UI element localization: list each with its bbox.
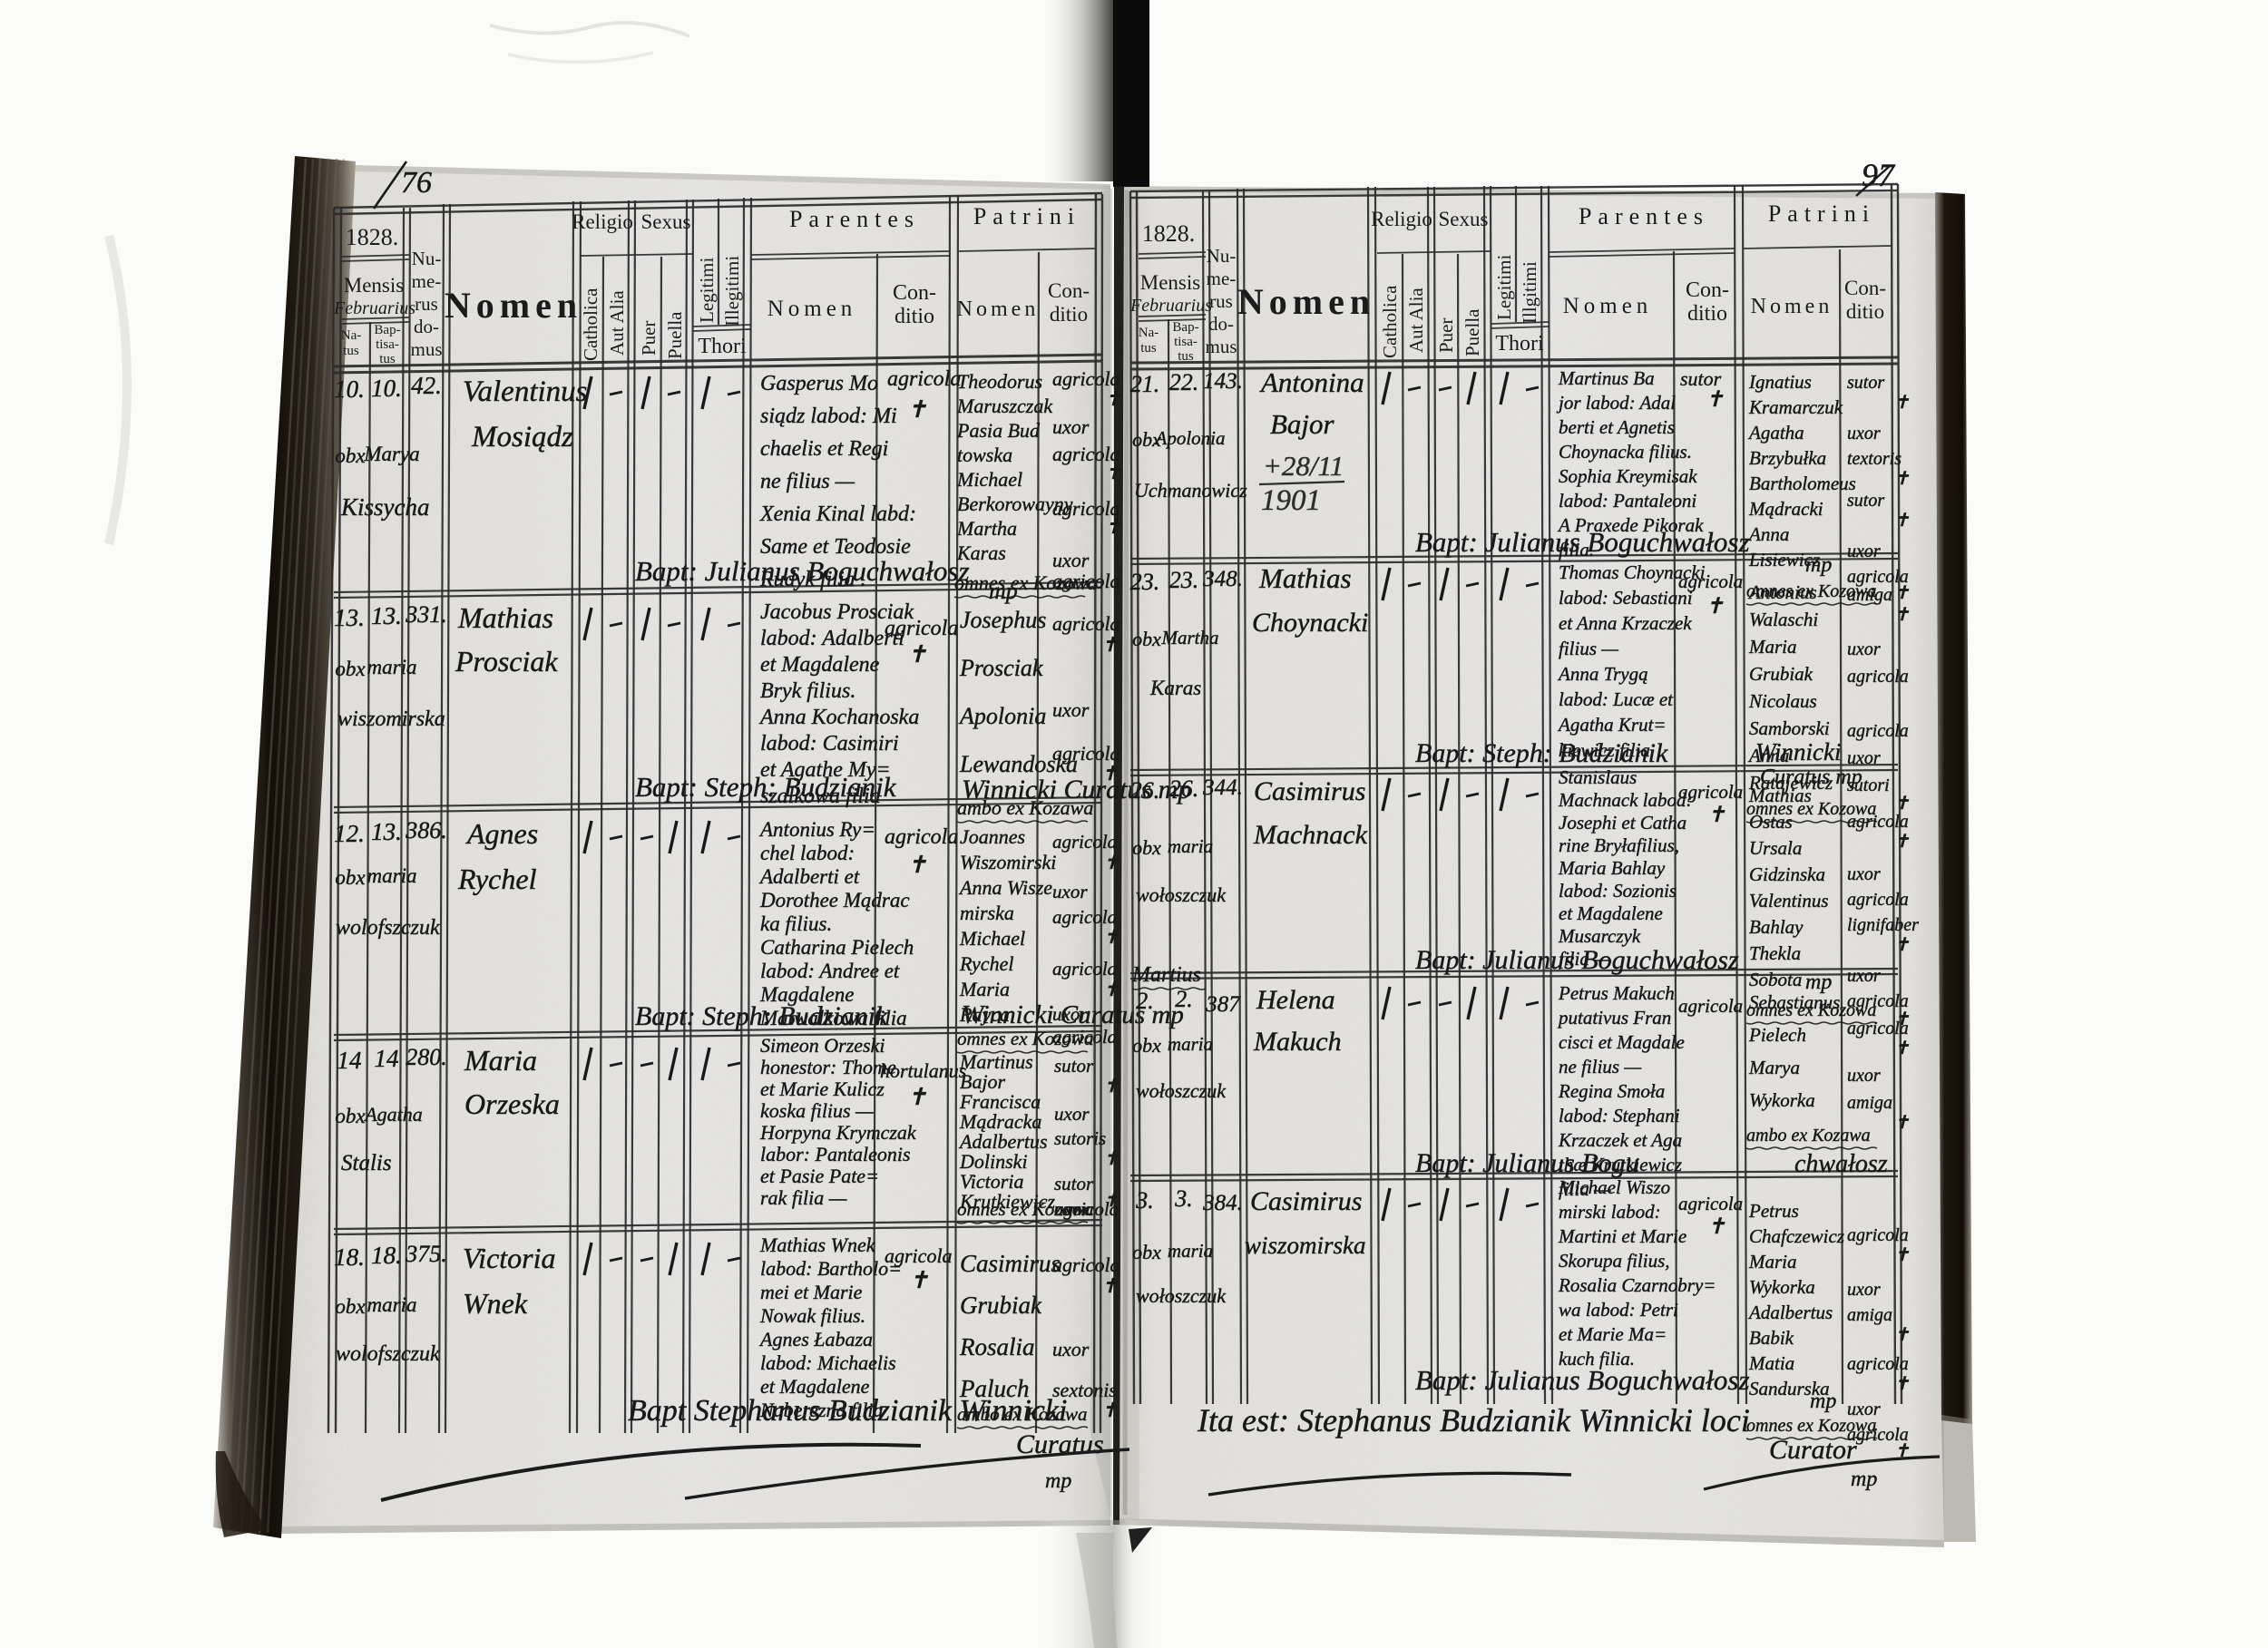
- svg-text:uxor: uxor: [1052, 549, 1090, 571]
- svg-text:sutor: sutor: [1054, 1173, 1094, 1195]
- svg-text:Apolonia: Apolonia: [958, 703, 1046, 729]
- svg-text:✝: ✝: [1894, 1325, 1910, 1345]
- svg-text:Na-: Na-: [341, 328, 362, 343]
- svg-text:Bapt: Julianus Boguchwałosz: Bapt: Julianus Boguchwałosz: [1415, 1364, 1750, 1396]
- svg-text:Martius: Martius: [1131, 963, 1201, 987]
- svg-text:mp: mp: [1805, 553, 1832, 577]
- svg-text:Bapt: Julianus Boguchwałosz: Bapt: Julianus Boguchwałosz: [1415, 526, 1750, 558]
- svg-text:agricola: agricola: [885, 1244, 953, 1267]
- svg-text:Con-: Con-: [1048, 279, 1090, 302]
- svg-text:Agnes Łabaza: Agnes Łabaza: [758, 1328, 873, 1351]
- svg-text:sutor: sutor: [1680, 367, 1722, 390]
- svg-text:Mathias: Mathias: [1748, 785, 1812, 806]
- svg-text:Bap-: Bap-: [374, 323, 400, 337]
- svg-text:Maria: Maria: [1748, 1251, 1797, 1273]
- svg-text:Sebastianus: Sebastianus: [1749, 991, 1840, 1013]
- svg-text:✝: ✝: [907, 396, 927, 423]
- svg-text:agricola: agricola: [1847, 667, 1909, 687]
- svg-text:labod: Sozionis: labod: Sozionis: [1559, 880, 1677, 902]
- svg-text:Petrus: Petrus: [1748, 1200, 1799, 1222]
- svg-text:Marya: Marya: [363, 443, 419, 465]
- svg-text:do-: do-: [414, 316, 439, 337]
- svg-text:Valentinus: Valentinus: [1749, 890, 1829, 912]
- svg-text:et Marie Ma=: et Marie Ma=: [1559, 1323, 1667, 1345]
- svg-text:3.: 3.: [1174, 1185, 1193, 1212]
- svg-text:mus: mus: [410, 338, 442, 360]
- svg-text:towska: towska: [957, 444, 1012, 466]
- svg-text:Casimirus: Casimirus: [1254, 776, 1365, 806]
- svg-text:Illgitimi: Illgitimi: [1519, 261, 1540, 324]
- svg-text:mirski labod:: mirski labod:: [1559, 1201, 1661, 1223]
- svg-text:Ignatius: Ignatius: [1748, 371, 1812, 393]
- svg-text:labod: Andree et: labod: Andree et: [760, 960, 900, 982]
- svg-text:rine Bryłafilius,: rine Bryłafilius,: [1559, 834, 1679, 856]
- svg-text:Legitimi: Legitimi: [1493, 255, 1515, 320]
- svg-text:Maria: Maria: [464, 1044, 537, 1077]
- svg-text:Matia: Matia: [1748, 1352, 1794, 1374]
- svg-text:labor: Pantaleonis: labor: Pantaleonis: [760, 1143, 911, 1165]
- svg-text:Michael Wiszo: Michael Wiszo: [1558, 1176, 1670, 1198]
- svg-text:Nomen: Nomen: [767, 297, 857, 321]
- svg-text:obx: obx: [1132, 628, 1161, 650]
- svg-text:ne filius —: ne filius —: [760, 470, 855, 493]
- svg-text:obx: obx: [335, 658, 366, 680]
- svg-text:agricola: agricola: [1678, 1193, 1743, 1214]
- svg-text:3.: 3.: [1135, 1187, 1154, 1214]
- svg-text:387: 387: [1205, 992, 1241, 1017]
- svg-text:berti et Agnetis: berti et Agnetis: [1559, 416, 1675, 438]
- svg-text:✝: ✝: [1101, 1399, 1118, 1421]
- svg-text:Skorupa filius,: Skorupa filius,: [1559, 1250, 1670, 1272]
- svg-text:344.: 344.: [1202, 775, 1243, 800]
- svg-text:wolofszczuk: wolofszczuk: [336, 916, 440, 940]
- svg-text:Bajor: Bajor: [1270, 408, 1335, 440]
- svg-text:Marya: Marya: [1748, 1057, 1800, 1078]
- svg-text:Pasia Bud: Pasia Bud: [956, 419, 1041, 442]
- svg-text:amiga: amiga: [1847, 585, 1892, 605]
- svg-text:Antonius: Antonius: [1747, 581, 1817, 603]
- svg-text:me-: me-: [1207, 268, 1237, 289]
- svg-text:Nicolaus: Nicolaus: [1748, 690, 1817, 712]
- svg-text:Ita est: Stephanus Budziani: Ita est: Stephanus Budzianik Winnicki lo…: [1197, 1402, 1750, 1438]
- svg-text:et Magdalene: et Magdalene: [760, 653, 880, 677]
- svg-text:✝: ✝: [1894, 794, 1910, 814]
- svg-text:Nomen: Nomen: [1237, 281, 1375, 322]
- svg-text:✝: ✝: [907, 641, 927, 668]
- svg-text:obx: obx: [335, 1295, 366, 1318]
- svg-text:obx: obx: [1132, 836, 1161, 859]
- svg-text:✝: ✝: [1103, 1147, 1119, 1169]
- svg-text:uxor: uxor: [1847, 966, 1881, 986]
- svg-text:agricola: agricola: [1678, 995, 1743, 1017]
- svg-text:Con-: Con-: [1844, 277, 1886, 299]
- svg-text:Babik: Babik: [1749, 1327, 1794, 1349]
- svg-text:maria: maria: [1168, 835, 1213, 857]
- svg-text:Februarius: Februarius: [333, 298, 415, 318]
- svg-text:maria: maria: [1168, 1033, 1213, 1055]
- svg-text:13.: 13.: [371, 818, 402, 845]
- svg-text:sutoris: sutoris: [1054, 1127, 1106, 1149]
- svg-text:Nomen: Nomen: [957, 297, 1040, 321]
- svg-text:Puella: Puella: [664, 311, 686, 359]
- svg-text:76: 76: [401, 166, 432, 200]
- svg-text:Karas: Karas: [1149, 677, 1201, 699]
- svg-text:Puer: Puer: [1435, 318, 1457, 354]
- svg-text:Catharina Pielech: Catharina Pielech: [760, 936, 914, 959]
- svg-text:Parentes: Parentes: [1579, 203, 1709, 229]
- svg-text:Adalberti et: Adalberti et: [758, 865, 860, 888]
- svg-text:Agatha: Agatha: [363, 1103, 423, 1126]
- svg-text:386.: 386.: [405, 817, 447, 844]
- svg-text:et Magdalene: et Magdalene: [1559, 902, 1663, 924]
- svg-text:mp: mp: [989, 578, 1018, 604]
- svg-text:Mathias: Mathias: [457, 601, 553, 634]
- svg-text:13.: 13.: [371, 602, 402, 629]
- svg-text:Agatha Krut=: Agatha Krut=: [1557, 714, 1667, 736]
- svg-text:agricola: agricola: [1052, 831, 1117, 853]
- svg-text:280.: 280.: [406, 1044, 447, 1070]
- svg-text:Nu-: Nu-: [412, 248, 442, 269]
- svg-text:Martinus Ba: Martinus Ba: [1558, 367, 1655, 389]
- svg-text:Stanislaus: Stanislaus: [1559, 766, 1637, 788]
- svg-text:✝: ✝: [1103, 979, 1119, 1000]
- svg-text:Rosalia Czarnobry=: Rosalia Czarnobry=: [1558, 1274, 1716, 1296]
- svg-text:obx: obx: [1132, 1241, 1161, 1263]
- svg-text:agricola: agricola: [1052, 906, 1117, 928]
- svg-text:agricola: agricola: [1847, 1354, 1909, 1374]
- svg-text:18.: 18.: [334, 1243, 365, 1271]
- svg-text:Na-: Na-: [1139, 326, 1159, 340]
- svg-text:Anna: Anna: [1747, 523, 1789, 545]
- svg-text:maria: maria: [1168, 1240, 1213, 1262]
- svg-text:Stalis: Stalis: [341, 1151, 392, 1175]
- svg-text:✝: ✝: [1103, 926, 1119, 948]
- svg-text:rus: rus: [415, 293, 438, 315]
- svg-text:wiszomirska: wiszomirska: [337, 707, 445, 731]
- svg-text:agricola: agricola: [1847, 991, 1909, 1011]
- svg-text:Anna Wisze: Anna Wisze: [958, 876, 1052, 899]
- svg-text:42.: 42.: [411, 372, 442, 399]
- svg-text:obx: obx: [335, 444, 366, 467]
- svg-text:Antonina: Antonina: [1259, 366, 1364, 398]
- svg-text:331.: 331.: [405, 601, 447, 628]
- svg-text:uxor: uxor: [1052, 415, 1090, 438]
- svg-text:Februarius: Februarius: [1129, 296, 1212, 316]
- svg-text:wołoszczuk: wołoszczuk: [1136, 883, 1227, 906]
- svg-text:Aut Alia: Aut Alia: [1405, 288, 1427, 353]
- svg-text:Bapt: Steph: Budzianik: Bapt: Steph: Budzianik: [635, 771, 897, 803]
- svg-text:Nu-: Nu-: [1207, 245, 1237, 267]
- svg-text:Con-: Con-: [1686, 278, 1729, 302]
- svg-text:Samborski: Samborski: [1749, 717, 1830, 739]
- svg-text:uxor: uxor: [1847, 864, 1881, 884]
- svg-text:✝: ✝: [1894, 605, 1910, 625]
- svg-text:Rychel: Rychel: [959, 952, 1013, 975]
- svg-text:Illegitimi: Illegitimi: [721, 256, 743, 327]
- svg-text:Maria: Maria: [959, 978, 1010, 1000]
- svg-text:uxor: uxor: [1847, 1066, 1881, 1086]
- svg-text:Thori: Thori: [1495, 332, 1544, 356]
- svg-text:labod: Michaelis: labod: Michaelis: [760, 1351, 896, 1374]
- svg-text:Agnes: Agnes: [465, 817, 538, 850]
- svg-text:wa labod: Petri: wa labod: Petri: [1559, 1299, 1678, 1321]
- svg-text:✝: ✝: [1105, 387, 1121, 410]
- svg-text:maria: maria: [367, 864, 417, 887]
- svg-text:Helena: Helena: [1256, 985, 1335, 1015]
- svg-text:ambo ex Kozawa: ambo ex Kozawa: [1746, 1126, 1871, 1146]
- svg-text:Bapt: Julianus Boguchwałosz: Bapt: Julianus Boguchwałosz: [1415, 945, 1739, 975]
- svg-text:Bapt: Julianus Boguchwałosz: Bapt: Julianus Boguchwałosz: [635, 555, 970, 587]
- svg-text:Grubiak: Grubiak: [960, 1292, 1042, 1319]
- svg-text:Wiszomirski: Wiszomirski: [960, 851, 1056, 873]
- svg-text:348.: 348.: [1202, 567, 1243, 591]
- svg-text:jor labod: Adal: jor labod: Adal: [1556, 392, 1676, 414]
- svg-text:wołoszczuk: wołoszczuk: [1136, 1079, 1227, 1102]
- svg-text:Apolonia: Apolonia: [1154, 427, 1226, 449]
- svg-text:ditio: ditio: [894, 305, 934, 328]
- svg-text:agricola: agricola: [1678, 570, 1743, 592]
- svg-text:textoris: textoris: [1847, 449, 1901, 469]
- svg-text:Choynacka filius.: Choynacka filius.: [1559, 441, 1692, 463]
- svg-text:honestor: Thome: honestor: Thome: [760, 1056, 896, 1078]
- svg-text:✝: ✝: [907, 1084, 927, 1110]
- svg-text:chel labod:: chel labod:: [760, 842, 855, 864]
- svg-text:Xenia Kinal labd:: Xenia Kinal labd:: [759, 502, 916, 526]
- svg-text:tus: tus: [343, 344, 359, 358]
- svg-text:Kramarczuk: Kramarczuk: [1748, 396, 1843, 418]
- svg-text:Bapt Stephanus Budzianik Wi: Bapt Stephanus Budzianik Winnicki: [628, 1394, 1067, 1428]
- svg-text:Michael: Michael: [959, 927, 1025, 950]
- svg-text:14: 14: [375, 1045, 399, 1072]
- svg-text:✝: ✝: [1103, 1075, 1119, 1097]
- svg-text:Petrus Makuch: Petrus Makuch: [1558, 982, 1675, 1004]
- svg-text:Mosiądz: Mosiądz: [471, 421, 573, 453]
- svg-text:Thekla: Thekla: [1749, 942, 1801, 964]
- svg-text:ne filius —: ne filius —: [1559, 1056, 1641, 1078]
- svg-text:✝: ✝: [909, 1267, 929, 1293]
- svg-text:✝: ✝: [1894, 583, 1910, 603]
- svg-text:Adalbertus: Adalbertus: [1747, 1302, 1833, 1323]
- svg-text:Mathias: Mathias: [1258, 562, 1352, 594]
- svg-text:Prosciak: Prosciak: [959, 655, 1043, 681]
- svg-text:labod: Lucæ et: labod: Lucæ et: [1559, 688, 1674, 710]
- svg-text:Con-: Con-: [893, 281, 936, 305]
- svg-text:Pielech: Pielech: [1748, 1024, 1806, 1046]
- svg-text:agricola: agricola: [1054, 1198, 1119, 1220]
- svg-text:Puella: Puella: [1461, 308, 1483, 356]
- svg-text:Josephus: Josephus: [960, 607, 1046, 633]
- svg-text:✝: ✝: [1707, 804, 1725, 827]
- svg-text:Bap-: Bap-: [1172, 320, 1198, 335]
- svg-text:Mathias Wnek: Mathias Wnek: [759, 1234, 876, 1256]
- svg-text:hortulanus: hortulanus: [880, 1059, 966, 1082]
- svg-text:143.: 143.: [1203, 369, 1243, 394]
- svg-text:chaelis et Regi: chaelis et Regi: [760, 437, 888, 461]
- svg-text:Musarczyk: Musarczyk: [1558, 925, 1641, 947]
- svg-text:Michael: Michael: [956, 468, 1022, 491]
- svg-text:Puer: Puer: [638, 321, 660, 356]
- svg-text:uxor: uxor: [1847, 1280, 1881, 1300]
- svg-text:2.: 2.: [1175, 986, 1193, 1012]
- svg-text:ditio: ditio: [1846, 300, 1884, 323]
- svg-text:uxor: uxor: [1052, 1338, 1090, 1360]
- svg-text:Brzybułka: Brzybułka: [1749, 447, 1826, 469]
- svg-text:Martha: Martha: [1161, 627, 1219, 648]
- svg-text:18.: 18.: [371, 1242, 402, 1269]
- svg-text:labod: Adalberti: labod: Adalberti: [760, 627, 904, 650]
- svg-text:agricola: agricola: [1847, 812, 1909, 832]
- svg-text:13.: 13.: [334, 604, 365, 631]
- svg-text:et Pasie Pate=: et Pasie Pate=: [760, 1165, 879, 1187]
- svg-text:✝: ✝: [1894, 1245, 1910, 1265]
- svg-text:koska filius —: koska filius —: [760, 1099, 874, 1122]
- svg-text:mus: mus: [1205, 336, 1237, 357]
- svg-text:Bryk filius.: Bryk filius.: [760, 679, 855, 703]
- svg-text:Religio: Religio: [572, 210, 633, 233]
- svg-text:Curator: Curator: [1769, 1435, 1857, 1465]
- svg-text:Horpyna Krymczak: Horpyna Krymczak: [759, 1121, 917, 1144]
- svg-text:Theodorus: Theodorus: [957, 370, 1042, 393]
- svg-text:✝: ✝: [1707, 1215, 1725, 1239]
- svg-text:ditio: ditio: [1687, 302, 1727, 326]
- svg-text:Wnek: Wnek: [463, 1287, 528, 1320]
- svg-text:Dorothee Mądrac: Dorothee Mądrac: [759, 889, 910, 912]
- svg-text:cisci et Magdale: cisci et Magdale: [1559, 1031, 1685, 1053]
- svg-text:Bapt: Steph: Budzianik: Bapt: Steph: Budzianik: [635, 1001, 888, 1031]
- svg-text:agricola: agricola: [1052, 958, 1117, 980]
- svg-text:et Anna Krzaczek: et Anna Krzaczek: [1559, 612, 1692, 634]
- svg-text:filius —: filius —: [1559, 638, 1618, 659]
- svg-text:Anna Trygą: Anna Trygą: [1557, 663, 1648, 685]
- svg-text:23.: 23.: [1169, 567, 1199, 593]
- svg-text:23.: 23.: [1130, 569, 1160, 595]
- svg-text:26.: 26.: [1130, 777, 1160, 804]
- svg-text:sutor: sutor: [1847, 491, 1884, 511]
- svg-text:14: 14: [337, 1047, 362, 1074]
- svg-text:Victoria: Victoria: [463, 1242, 556, 1274]
- svg-text:uxor: uxor: [1052, 881, 1088, 902]
- svg-text:Valentinus: Valentinus: [463, 375, 588, 408]
- svg-text:21.: 21.: [1130, 371, 1160, 397]
- svg-text:✝: ✝: [1894, 511, 1910, 531]
- svg-text:agricola: agricola: [1847, 1019, 1909, 1039]
- svg-text:Sexus: Sexus: [641, 210, 691, 233]
- svg-text:Rychel: Rychel: [457, 863, 537, 895]
- svg-text:Maruszczak: Maruszczak: [956, 395, 1053, 417]
- svg-text:✝: ✝: [1101, 1274, 1118, 1297]
- svg-text:Nomen: Nomen: [445, 285, 582, 326]
- svg-text:1828.: 1828.: [1142, 220, 1196, 247]
- svg-text:labod: Bartholo=: labod: Bartholo=: [760, 1257, 902, 1280]
- svg-text:Sexus: Sexus: [1439, 208, 1489, 230]
- svg-text:Makuch: Makuch: [1253, 1027, 1342, 1057]
- svg-text:agricola: agricola: [1052, 570, 1120, 592]
- svg-text:uxor: uxor: [1847, 541, 1881, 561]
- svg-text:Antonius Ry=: Antonius Ry=: [758, 818, 875, 841]
- svg-text:obx: obx: [335, 1105, 366, 1127]
- svg-text:✝: ✝: [1105, 515, 1121, 538]
- svg-text:tus: tus: [379, 352, 396, 366]
- svg-text:uxor: uxor: [1054, 1103, 1090, 1125]
- svg-text:labod: Casimiri: labod: Casimiri: [760, 732, 899, 756]
- svg-text:et Marie Kulicz: et Marie Kulicz: [760, 1078, 885, 1100]
- svg-text:sutor: sutor: [1054, 1055, 1094, 1077]
- svg-text:ditio: ditio: [1050, 303, 1088, 326]
- svg-text:agricola: agricola: [1847, 890, 1909, 910]
- svg-text:mei et Marie: mei et Marie: [760, 1281, 863, 1303]
- svg-text:Patrini: Patrini: [1768, 200, 1875, 227]
- svg-text:obx: obx: [335, 866, 366, 889]
- svg-text:✝: ✝: [1894, 469, 1910, 489]
- svg-text:Nomen: Nomen: [1751, 295, 1833, 318]
- svg-text:Kissycha: Kissycha: [340, 493, 430, 521]
- svg-text:me-: me-: [412, 270, 442, 292]
- svg-text:uxor: uxor: [1847, 424, 1881, 444]
- svg-text:Thori: Thori: [698, 335, 747, 358]
- svg-text:mirska: mirska: [960, 902, 1014, 924]
- svg-text:Grubiak: Grubiak: [1749, 663, 1813, 685]
- svg-text:agricola: agricola: [887, 367, 961, 391]
- svg-text:Bapt: Julianus Bogu: Bapt: Julianus Bogu: [1415, 1148, 1639, 1178]
- svg-text:2.: 2.: [1136, 988, 1154, 1014]
- svg-text:+28/11: +28/11: [1263, 450, 1344, 482]
- svg-text:10.: 10.: [334, 375, 365, 403]
- svg-text:✝: ✝: [1103, 852, 1119, 873]
- svg-text:22.: 22.: [1169, 369, 1199, 395]
- svg-text:rak filia —: rak filia —: [760, 1186, 847, 1209]
- svg-text:Bapt: Steph: Budzianik: Bapt: Steph: Budzianik: [1415, 738, 1668, 768]
- svg-text:Bartholomeus: Bartholomeus: [1749, 473, 1856, 494]
- svg-text:agricola: agricola: [1052, 612, 1120, 635]
- svg-text:10.: 10.: [371, 375, 402, 402]
- svg-text:Maria: Maria: [1748, 636, 1797, 658]
- svg-text:Bahlay: Bahlay: [1749, 916, 1804, 938]
- svg-text:✝: ✝: [1894, 1374, 1910, 1394]
- svg-text:tus: tus: [1140, 341, 1157, 356]
- svg-text:rus: rus: [1209, 290, 1233, 312]
- svg-text:1828.: 1828.: [346, 224, 399, 250]
- svg-text:Anna Kochanoska: Anna Kochanoska: [758, 706, 919, 729]
- svg-text:uxor: uxor: [1052, 698, 1090, 721]
- svg-text:agricola: agricola: [885, 617, 958, 640]
- svg-text:Prosciak: Prosciak: [455, 645, 558, 678]
- svg-text:mp: mp: [1045, 1469, 1071, 1493]
- svg-text:wolofszczuk: wolofszczuk: [336, 1342, 440, 1366]
- svg-text:384.: 384.: [1202, 1191, 1243, 1215]
- svg-text:Wykorka: Wykorka: [1749, 1276, 1815, 1298]
- svg-text:Sobota: Sobota: [1749, 969, 1802, 990]
- svg-text:maria: maria: [367, 656, 417, 678]
- svg-text:sutor: sutor: [1847, 373, 1884, 393]
- svg-text:✝: ✝: [1894, 832, 1910, 852]
- svg-text:Parentes: Parentes: [789, 206, 920, 232]
- svg-text:✝: ✝: [1101, 633, 1118, 656]
- svg-text:labod: Sebastiani: labod: Sebastiani: [1559, 587, 1693, 609]
- svg-text:✝: ✝: [1894, 1039, 1910, 1058]
- svg-text:wiszomirska: wiszomirska: [1245, 1232, 1366, 1259]
- svg-text:Patrini: Patrini: [973, 203, 1080, 229]
- svg-text:Nowak filius.: Nowak filius.: [759, 1304, 865, 1327]
- svg-text:✝: ✝: [1894, 935, 1910, 955]
- svg-text:Catholica: Catholica: [580, 288, 601, 361]
- svg-text:Mensis: Mensis: [344, 274, 405, 297]
- svg-text:siądz labod: Mi: siądz labod: Mi: [760, 405, 897, 428]
- svg-text:Walaschi: Walaschi: [1749, 609, 1818, 630]
- svg-text:Catholica: Catholica: [1379, 285, 1401, 358]
- svg-text:Casimirus: Casimirus: [960, 1250, 1061, 1277]
- svg-text:✝: ✝: [1706, 388, 1724, 412]
- svg-text:mp: mp: [1810, 1390, 1836, 1413]
